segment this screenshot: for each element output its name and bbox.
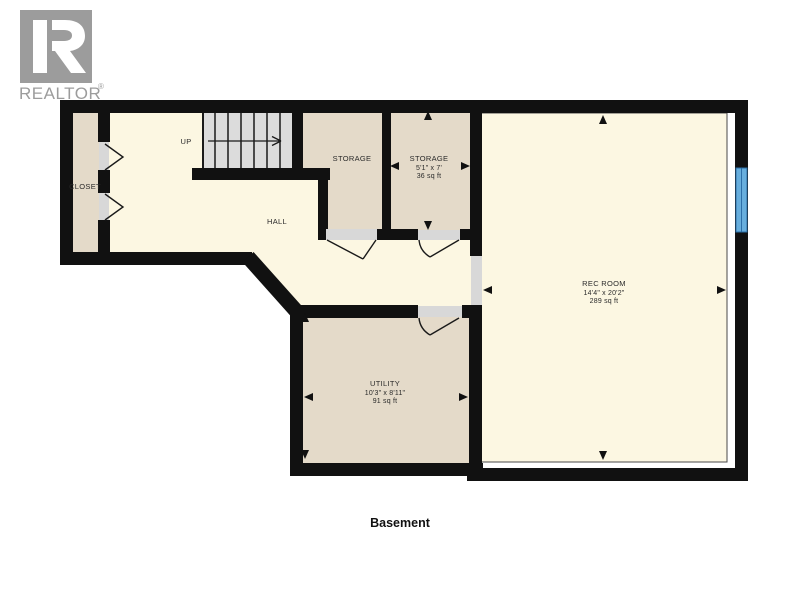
floor-title: Basement	[370, 516, 431, 530]
wall-storage-divider	[382, 100, 391, 240]
storage-large-area: 36 sq ft	[417, 173, 442, 180]
stairs-up-label: UP	[180, 137, 191, 146]
wall-top	[60, 100, 748, 113]
storage-large-dimensions: 5'1" x 7'	[416, 165, 442, 172]
rec-room-label: REC ROOM	[582, 279, 626, 288]
wall-closet-upper	[98, 100, 110, 142]
wall-storage-band-mid	[377, 229, 418, 240]
basement-floor-plan: REALTOR ®	[0, 0, 800, 600]
utility-floor	[296, 310, 472, 468]
storage-large-label: STORAGE	[410, 154, 449, 163]
logo-r-icon	[20, 10, 92, 83]
hall-rec-opening	[471, 256, 482, 305]
wall-hall-rec-divider	[470, 100, 482, 256]
wall-utility-top	[290, 305, 418, 318]
wall-closet-lower	[98, 220, 110, 265]
logo-registered-mark: ®	[98, 82, 104, 91]
storage-small-label: STORAGE	[333, 154, 372, 163]
wall-utility-right	[469, 305, 482, 476]
utility-area: 91 sq ft	[373, 398, 398, 405]
wall-utility-left	[290, 305, 303, 476]
utility-dimensions: 10'3" x 8'11"	[365, 390, 406, 397]
rec-room-window	[736, 168, 747, 232]
rec-room-dimensions: 14'4" x 20'2"	[584, 290, 625, 297]
closet-label: CLOSET	[69, 182, 101, 191]
rec-room-area: 289 sq ft	[590, 298, 619, 305]
closet-opening-bottom	[99, 193, 109, 220]
utility-label: UTILITY	[370, 379, 400, 388]
wall-storage-band-left	[318, 229, 326, 240]
wall-bottom-outer	[467, 468, 748, 481]
hall-label: HALL	[267, 217, 287, 226]
utility-opening	[418, 306, 462, 317]
realtor-logo: REALTOR ®	[19, 10, 104, 103]
wall-bottom-under-utility	[290, 463, 483, 476]
storage-small-opening	[326, 229, 377, 240]
wall-right	[735, 100, 748, 481]
stairs	[202, 104, 292, 170]
wall-under-stairs	[192, 168, 330, 180]
storage-large-opening	[418, 230, 460, 240]
wall-hall-bottom	[60, 252, 252, 265]
